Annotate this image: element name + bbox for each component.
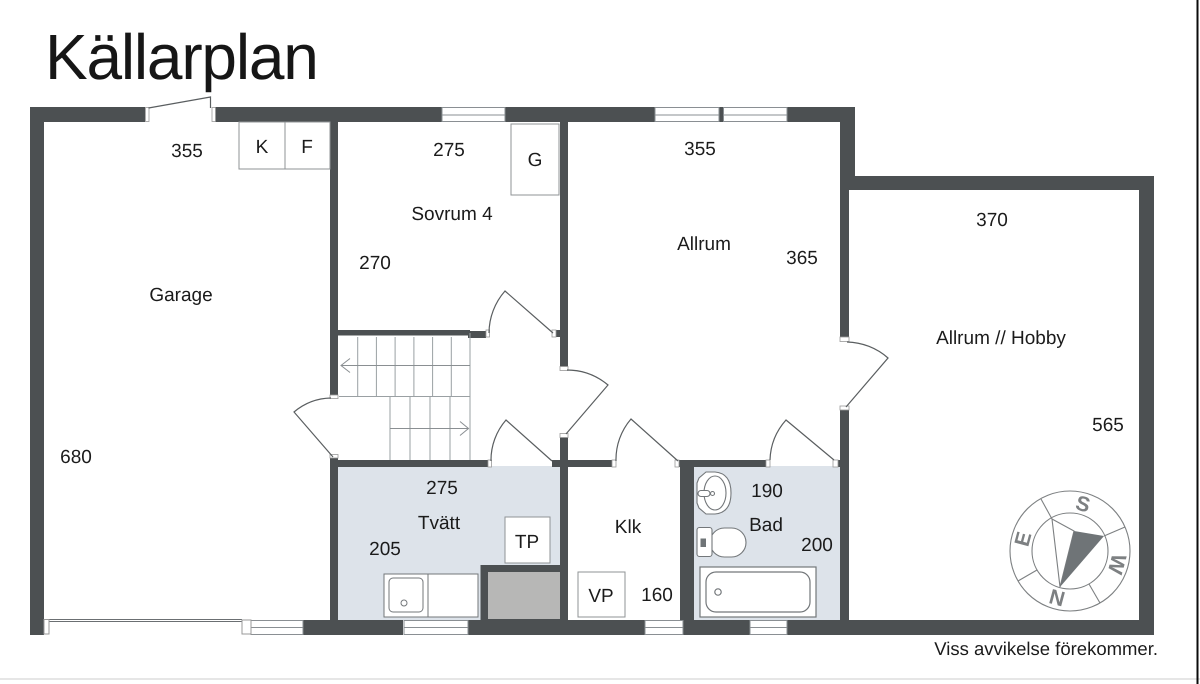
svg-text:565: 565	[1092, 415, 1124, 436]
svg-text:F: F	[301, 137, 313, 158]
svg-text:Allrum: Allrum	[677, 234, 731, 255]
svg-text:G: G	[528, 150, 543, 171]
svg-text:K: K	[256, 137, 269, 158]
svg-text:Garage: Garage	[149, 285, 212, 306]
svg-text:680: 680	[60, 447, 92, 468]
svg-text:365: 365	[786, 248, 818, 269]
svg-text:205: 205	[369, 539, 401, 560]
svg-text:Bad: Bad	[749, 515, 783, 536]
svg-text:Allrum // Hobby: Allrum // Hobby	[936, 328, 1066, 349]
svg-text:Sovrum 4: Sovrum 4	[411, 204, 493, 225]
svg-text:370: 370	[976, 210, 1008, 231]
svg-text:275: 275	[426, 478, 458, 499]
svg-text:200: 200	[801, 535, 833, 556]
svg-text:TP: TP	[515, 532, 539, 553]
svg-text:Tvätt: Tvätt	[418, 513, 461, 534]
svg-text:270: 270	[359, 253, 391, 274]
svg-text:190: 190	[751, 481, 783, 502]
svg-text:Viss avvikelse förekommer.: Viss avvikelse förekommer.	[934, 638, 1158, 659]
svg-text:355: 355	[684, 139, 716, 160]
svg-text:275: 275	[433, 140, 465, 161]
svg-text:160: 160	[641, 585, 673, 606]
svg-text:Klk: Klk	[615, 517, 642, 538]
svg-text:355: 355	[171, 141, 203, 162]
svg-text:VP: VP	[588, 586, 613, 607]
svg-text:Källarplan: Källarplan	[45, 21, 318, 93]
